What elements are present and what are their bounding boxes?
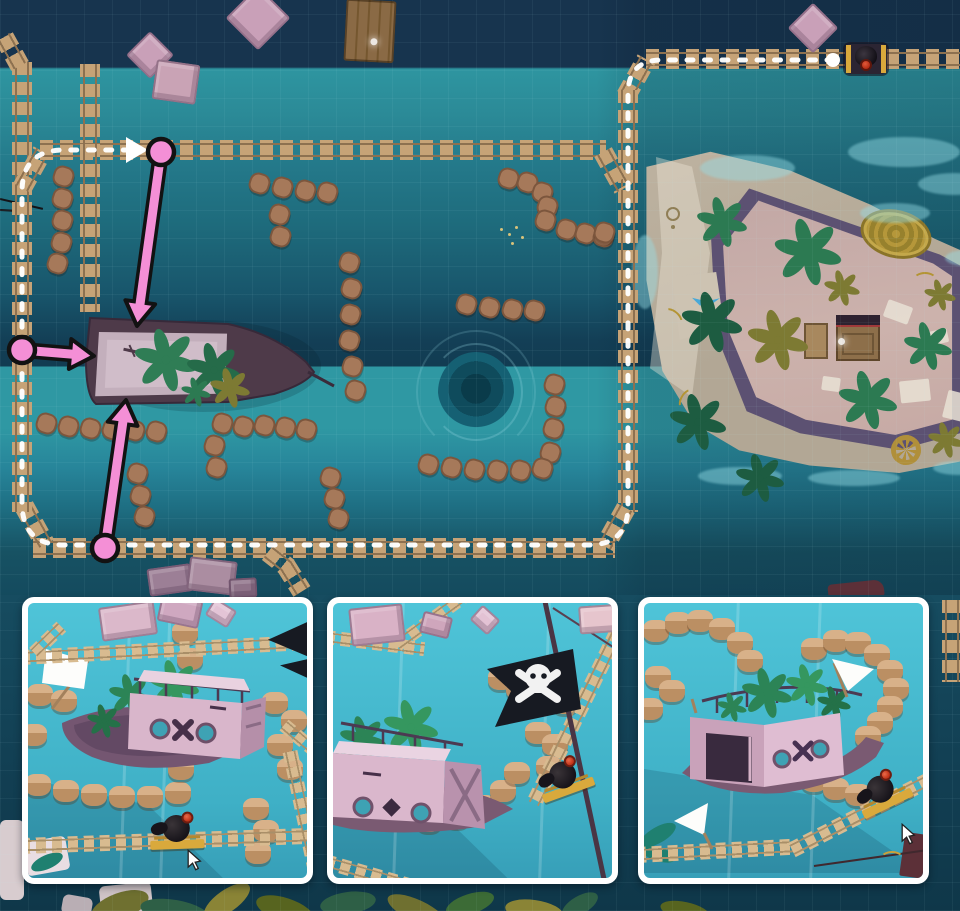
floating-crate bbox=[469, 605, 500, 636]
crate-slat bbox=[842, 333, 874, 355]
stone-pillar bbox=[137, 786, 163, 808]
floating-crate bbox=[205, 598, 238, 629]
foliage-leaf bbox=[319, 888, 378, 911]
rail-track bbox=[40, 140, 606, 160]
sunken-crate bbox=[228, 577, 257, 598]
gold-rope bbox=[880, 851, 904, 867]
whirlpool bbox=[438, 352, 514, 432]
small-crate bbox=[804, 323, 828, 359]
stone-pillar bbox=[53, 780, 79, 802]
sparkle-icon bbox=[370, 38, 377, 45]
white-flag-icon bbox=[672, 799, 722, 851]
pirate-flag-icon bbox=[481, 647, 596, 732]
shallow-water-patch bbox=[848, 137, 960, 167]
rail-track bbox=[12, 62, 32, 512]
rail-track bbox=[618, 90, 638, 512]
beach-rock bbox=[60, 894, 93, 911]
inset-screenshot-2 bbox=[327, 597, 618, 884]
stone-pillar bbox=[165, 782, 191, 804]
shallow-water-patch bbox=[808, 470, 900, 486]
debris-speck bbox=[521, 236, 524, 239]
shallow-water-patch bbox=[860, 203, 930, 223]
lantern-icon bbox=[666, 207, 680, 221]
debris-speck bbox=[500, 228, 503, 231]
shallow-water-patch bbox=[698, 467, 782, 485]
stone-pillar bbox=[243, 798, 269, 820]
debris-speck bbox=[508, 233, 511, 236]
rail-track bbox=[942, 600, 960, 682]
ship-wheel bbox=[891, 435, 921, 465]
shipwreck-3d-view bbox=[662, 655, 892, 800]
wooden-raft bbox=[343, 0, 396, 63]
game-screenshot bbox=[0, 0, 960, 911]
pirate-flag-icon bbox=[280, 655, 313, 681]
shallow-water-patch bbox=[700, 155, 795, 181]
paper-scrap bbox=[821, 376, 841, 392]
crate-band bbox=[836, 315, 880, 327]
floating-crate bbox=[98, 600, 158, 641]
foliage-leaf bbox=[504, 896, 564, 911]
rail-track bbox=[80, 64, 100, 312]
wagon-bumper bbox=[881, 45, 886, 73]
rope-squiggle bbox=[913, 272, 937, 288]
floating-crate bbox=[348, 603, 406, 646]
stone-pillar bbox=[81, 784, 107, 806]
floating-crate bbox=[157, 597, 204, 629]
rail-track bbox=[283, 749, 313, 884]
foliage-leaf bbox=[659, 897, 712, 911]
sparkle-icon bbox=[724, 223, 729, 228]
foliage-leaf bbox=[253, 889, 317, 911]
floating-crate-box bbox=[151, 59, 200, 105]
paper-scrap bbox=[899, 378, 931, 403]
treasure-island bbox=[640, 95, 960, 495]
wagon-bumper bbox=[846, 45, 851, 73]
shipwreck-top-view[interactable] bbox=[78, 300, 336, 424]
foliage-leaf bbox=[383, 888, 450, 911]
shallow-water-patch bbox=[933, 461, 960, 475]
shipwreck-3d-view bbox=[34, 643, 278, 783]
stone-pillar bbox=[638, 698, 663, 720]
foliage-leaf bbox=[443, 887, 497, 911]
foliage-leaf bbox=[558, 887, 602, 911]
cannon-wagon[interactable] bbox=[845, 44, 887, 74]
inset-screenshot-1 bbox=[22, 597, 313, 884]
stone-pillar bbox=[109, 786, 135, 808]
debris-speck bbox=[515, 226, 518, 229]
rail-track bbox=[646, 49, 960, 69]
debris-speck bbox=[511, 242, 514, 245]
shallow-water-patch bbox=[918, 173, 960, 195]
rail-track bbox=[33, 538, 615, 558]
fire-button bbox=[181, 811, 193, 823]
sparkle-icon bbox=[838, 338, 845, 345]
inset-screenshot-3 bbox=[638, 597, 929, 884]
beach-rock bbox=[0, 820, 24, 900]
floating-crate bbox=[578, 603, 618, 634]
fire-button[interactable] bbox=[860, 59, 872, 71]
